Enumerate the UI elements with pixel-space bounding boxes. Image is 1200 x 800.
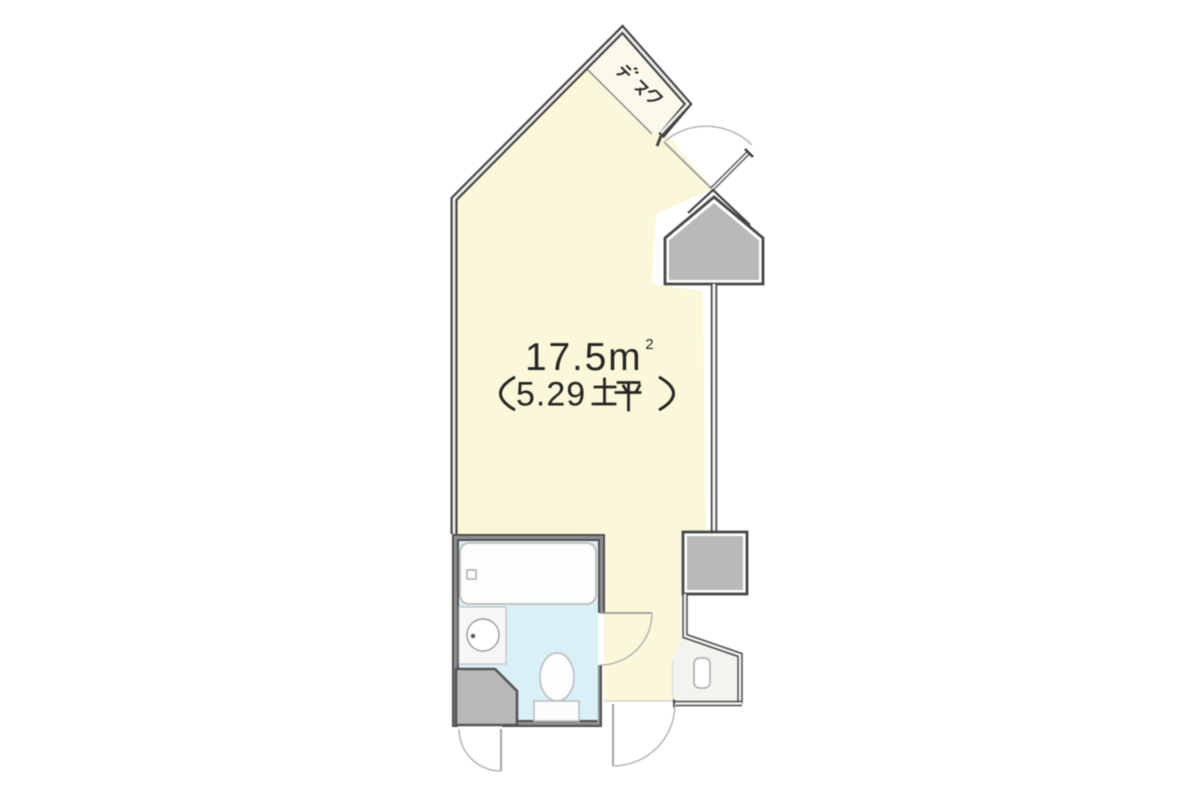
svg-text:5.29: 5.29 [516,376,586,414]
svg-text:17.5m2: 17.5m2 [525,336,656,379]
